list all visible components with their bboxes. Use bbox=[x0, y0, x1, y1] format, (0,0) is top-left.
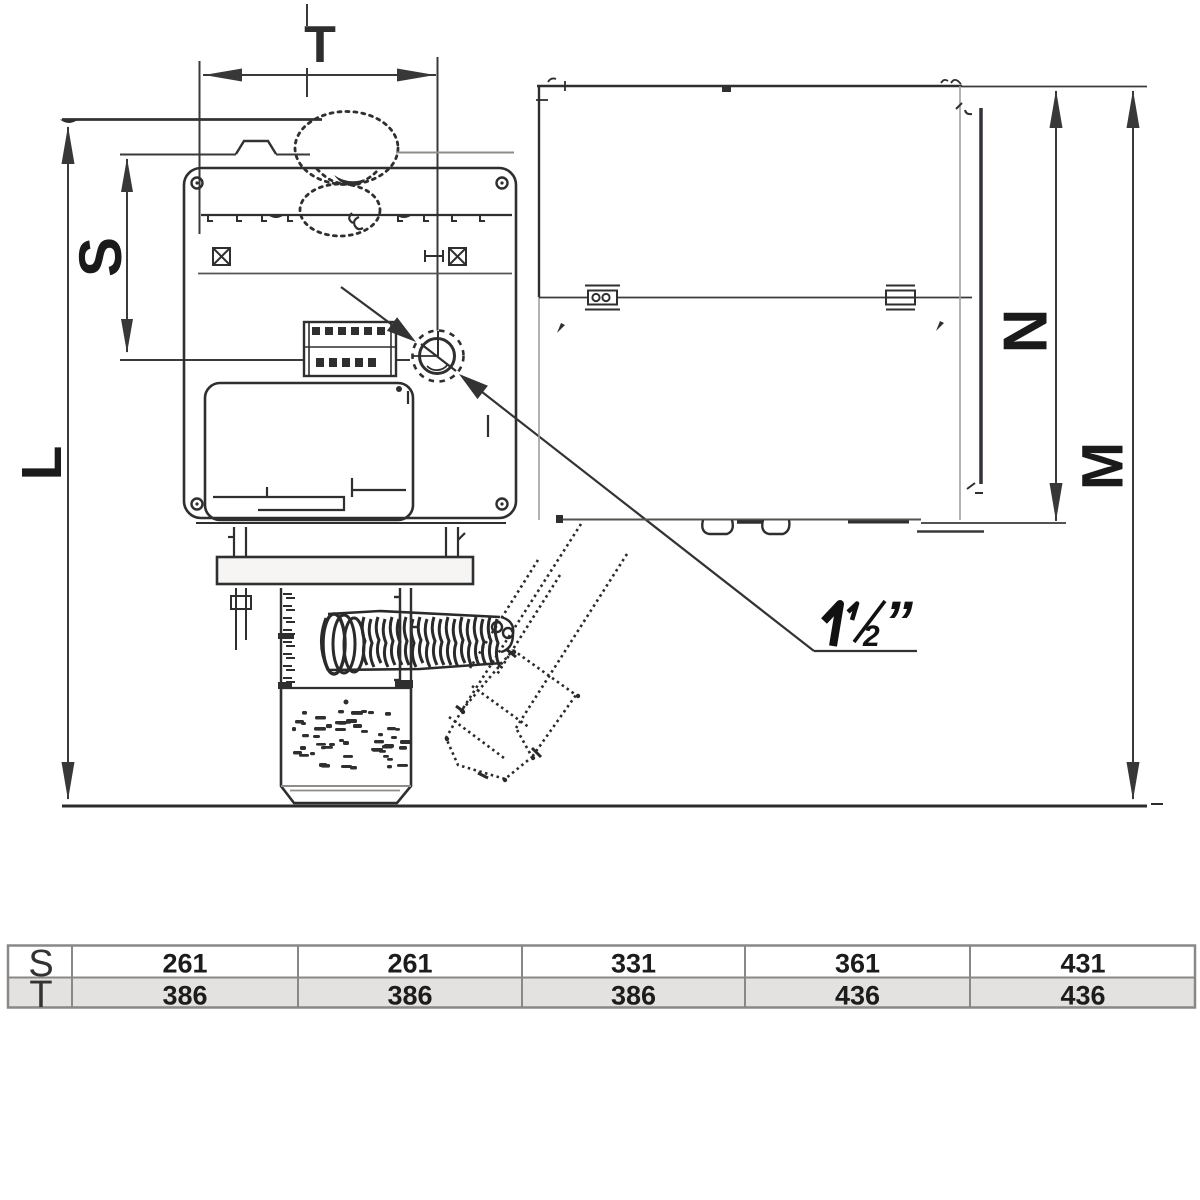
svg-text:436: 436 bbox=[835, 981, 880, 1011]
svg-text:261: 261 bbox=[162, 949, 207, 979]
svg-text:386: 386 bbox=[611, 981, 656, 1011]
svg-text:386: 386 bbox=[387, 981, 432, 1011]
svg-text:”: ” bbox=[884, 590, 913, 655]
svg-text:261: 261 bbox=[387, 949, 432, 979]
svg-text:2: 2 bbox=[862, 620, 880, 653]
svg-text:386: 386 bbox=[162, 981, 207, 1011]
svg-text:N: N bbox=[991, 309, 1060, 354]
svg-text:T: T bbox=[304, 16, 336, 74]
svg-text:436: 436 bbox=[1060, 981, 1105, 1011]
svg-text:361: 361 bbox=[835, 949, 880, 979]
svg-text:T: T bbox=[29, 974, 52, 1016]
svg-text:331: 331 bbox=[611, 949, 656, 979]
svg-text:431: 431 bbox=[1060, 949, 1105, 979]
svg-text:M: M bbox=[1070, 442, 1135, 490]
svg-text:L: L bbox=[10, 446, 74, 481]
svg-text:S: S bbox=[67, 237, 134, 277]
